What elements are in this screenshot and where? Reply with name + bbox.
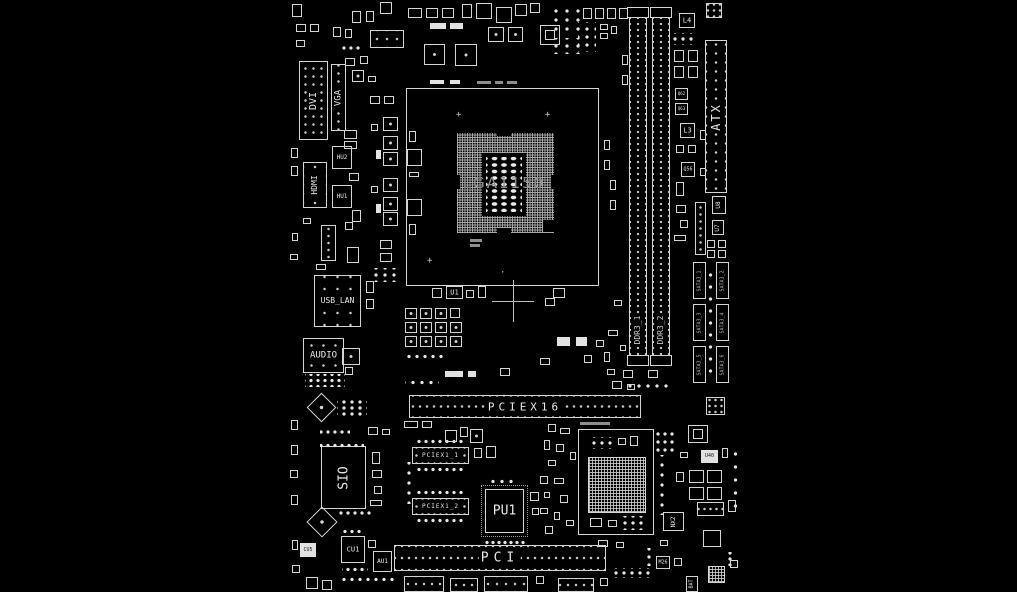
socket-notch [497,228,511,233]
smd-part [455,44,477,66]
smd-part [445,371,463,377]
smd-part [340,528,364,535]
chip-hu1-label: HU1 [335,194,350,200]
smd-part [380,253,392,262]
sata-port-6: SATA3_6 [716,346,729,383]
ddr3-2-slot: DDR3_2 [652,8,670,365]
smd-part [604,160,610,170]
smd-part [422,421,432,428]
smd-part [536,576,544,584]
smd-part [376,150,381,159]
smd-part [405,378,439,387]
smd-part [584,355,592,363]
smd-part [320,441,364,450]
smd-part [366,281,374,293]
smd-part [484,576,528,592]
smd-part [292,565,300,573]
smd-part [383,152,398,166]
smd-part [430,23,446,29]
smd-part [689,470,704,483]
smd-part [420,336,432,347]
smd-part [349,173,359,181]
chip-q62: Q62 [675,88,688,100]
ic-small-1 [706,397,725,415]
smd-part [508,27,523,42]
smd-part [341,44,361,52]
smd-part [344,130,357,139]
sata-port-3-label: SATA3_3 [697,312,702,333]
smd-part [296,24,306,32]
smd-part [383,178,398,192]
smd-part [540,476,548,484]
sata-port-4: SATA3_4 [716,304,729,341]
smd-part [420,308,432,319]
chip-nx2-label: NX2 [671,514,677,529]
smd-part [500,368,510,376]
smd-part [342,566,368,573]
smd-part [532,508,539,515]
smd-part [660,540,668,546]
smd-part [485,539,525,546]
header-vertical [695,202,706,255]
chip-q63: Q63 [675,103,688,115]
smd-part [291,166,298,176]
smd-part [544,440,550,450]
smd-part [703,530,721,547]
smd-part [680,452,688,458]
smd-part [352,210,361,222]
smd-part [630,436,638,446]
chip-cu5-label: CU5 [303,548,312,553]
smd-part [370,500,382,506]
smd-part [344,141,357,149]
smd-part [345,29,352,38]
top-right-header [706,3,722,18]
smd-part [558,578,594,592]
atx-power-connector-label: ATX [710,101,722,133]
smd-part [676,145,684,153]
smd-part [380,240,392,249]
smd-part [674,66,684,78]
smd-part [290,470,298,478]
smd-part [291,148,298,158]
sata-port-1-label: SATA3_1 [697,270,702,291]
smd-part [405,352,445,361]
pciex1-1-slot: PCIEX1_1 [412,447,469,464]
smd-part [718,240,726,248]
smd-part [408,8,422,18]
smd-part [450,322,462,333]
smd-part [291,495,298,505]
smd-part [628,382,668,390]
sata-port-5-label: SATA3_5 [697,354,702,375]
smd-part [460,427,468,437]
smd-part [611,26,617,34]
smd-part [545,298,555,306]
smd-part [610,180,616,190]
smd-part [620,345,626,351]
smd-part [688,50,698,62]
smd-part [320,428,350,436]
smd-part [604,140,610,150]
smd-part [384,96,394,104]
smd-part [291,420,298,430]
smd-part [468,371,476,377]
smd-part [366,299,374,309]
dvi-connector-label: DVI [309,89,319,111]
smd-part [368,540,376,548]
smd-part [345,222,353,230]
smd-part [405,322,417,333]
chip-sio: SIO [321,446,366,509]
crosshair-horizontal [492,301,534,302]
chip-l4: L4 [679,13,695,28]
smd-part [352,70,364,82]
smd-part [688,145,696,153]
smd-part [424,44,445,65]
chip-u40: U40 [701,450,718,463]
smd-part [442,8,454,18]
smd-part [466,290,474,298]
smd-part [545,526,553,534]
pciex1-2-slot: PCIEX1_2 [412,498,469,515]
smd-part [590,518,602,527]
smd-part [614,300,622,306]
smd-part [310,24,319,32]
socket-alignment-mark: + [456,111,461,120]
vga-connector: VGA [331,64,346,131]
chip-m26-label: M26 [656,560,669,565]
chip-l4-label: L4 [681,17,693,24]
smd-part [590,437,614,449]
smd-part [450,336,462,347]
socket-label: LGA1150 [463,174,545,192]
smd-part [292,233,298,241]
smd-part [322,580,332,590]
smd-part [676,472,684,482]
smd-part [380,2,392,14]
vga-connector-label: VGA [334,87,343,107]
smd-part [688,66,698,78]
dvi-connector: DVI [299,61,328,140]
hdmi-connector: HDMI [303,162,327,208]
smd-part [612,381,622,389]
ddr3-1-slot-label: DDR3_1 [634,315,642,346]
smd-part [435,322,447,333]
sata-port-2: SATA3_2 [716,262,729,299]
smd-part [655,455,669,515]
smd-part [616,542,624,548]
socket-notch [455,175,460,189]
chip-au1: AU1 [373,551,392,572]
smd-part [618,438,626,445]
smd-part [360,56,368,64]
socket-notch [497,131,511,136]
smd-part [383,197,398,211]
sata-port-3: SATA3_3 [693,304,706,341]
smd-part [370,30,404,48]
smd-part [496,7,512,23]
chip-u1: U1 [446,286,463,299]
chip-q62-label: Q62 [676,92,687,96]
chip-u8-label: U8 [716,199,722,210]
smd-part [450,23,463,29]
smd-part [372,452,380,464]
smd-part [622,75,628,85]
smd-part [680,220,688,228]
smd-part [622,516,644,530]
smd-part [722,448,728,458]
smd-part [648,370,658,378]
smd-part [371,186,378,193]
smd-part [689,487,704,500]
smd-part [707,487,722,500]
pciex1-2-slot-label: PCIEX1_2 [420,504,461,510]
smd-part [672,33,694,45]
hdmi-connector-label: HDMI [311,173,319,196]
fiducial-2 [306,506,337,537]
smd-part [338,509,372,517]
smd-part [426,8,438,18]
smd-part [291,445,298,455]
smd-part [383,212,398,226]
smd-part [600,24,608,30]
smd-part [290,254,298,260]
battery-connector-label: BAT [690,577,695,590]
smd-part [674,558,682,566]
socket-notch [551,175,556,189]
smd-part [305,374,345,387]
sata-port-2-label: SATA3_2 [720,270,725,291]
smd-part [383,136,398,150]
sata-port-6-label: SATA3_6 [720,354,725,375]
smd-part [414,517,466,524]
smd-part [435,308,447,319]
smd-part [488,27,504,42]
chip-pu1-label: PU1 [491,505,518,518]
sata-port-5: SATA3_5 [693,346,706,383]
smd-part [430,80,444,84]
smd-part [414,466,466,473]
smd-part [607,369,615,375]
smd-part [470,429,483,443]
smd-part [554,478,564,484]
smd-part [340,575,396,584]
smd-part [623,370,633,378]
smd-part [462,4,472,18]
smd-part [576,337,587,346]
chip-u7-label: U7 [715,222,721,233]
boardview-canvas: DVIVGAHDMIHU2HU1USB_LANAUDIOSIOCU1CU5AU1… [0,0,1017,592]
smd-part [352,11,361,23]
smd-part [432,288,442,298]
smd-part [600,33,608,39]
atx-power-connector: ATX [705,40,727,193]
smd-part [530,492,539,501]
smd-part [707,470,722,483]
smd-part [557,337,570,346]
smd-part [306,577,318,589]
smd-part [580,422,610,425]
smd-part [674,235,686,241]
pci-slot-label: PCI [479,552,521,565]
chip-u8: U8 [712,196,726,214]
smd-part [486,446,496,458]
smd-part [345,58,355,66]
smd-part [405,336,417,347]
smd-part [383,117,398,131]
chip-u1-label: U1 [448,289,460,296]
smd-part [337,399,367,417]
chip-q63-label: Q63 [676,107,687,111]
smd-part [610,200,616,210]
chip-m26: M26 [656,556,670,569]
smd-part [676,182,684,196]
smd-part [730,560,738,568]
chip-sio-label: SIO [337,464,350,491]
smd-part [622,55,628,65]
smd-part [405,308,417,319]
smd-part [420,322,432,333]
smd-part [414,438,466,445]
smd-part [608,520,617,527]
audio-connector: AUDIO [303,338,344,373]
smd-part [495,81,503,84]
cpu-socket: LGA1150+++· [406,88,599,286]
socket-alignment-mark: + [545,111,550,120]
pciex1-1-slot-label: PCIEX1_1 [420,453,461,459]
smd-part [370,96,380,104]
smd-part [707,250,715,258]
smd-part [718,250,726,258]
usb-lan-connector: USB_LAN [314,275,361,327]
smd-part [450,308,460,318]
smd-part [368,76,376,82]
sata-caps [707,268,714,378]
audio-codec-chip [321,225,336,261]
battery-connector: BAT [686,576,698,592]
fiducial-1 [307,393,337,423]
smd-part [566,520,574,526]
chip-u40-label: U40 [705,454,714,459]
chip-hu2: HU2 [332,146,352,169]
smd-part [556,444,564,452]
smd-part [600,578,608,586]
smd-part [404,462,414,504]
smd-part [450,578,478,592]
smd-part [604,352,610,362]
smd-part [560,495,568,503]
smd-part [619,8,628,19]
smd-part [371,124,378,131]
socket-alignment-mark: + [427,257,432,266]
chip-au1-label: AU1 [375,559,390,565]
socket-alignment-mark: · [500,269,505,278]
pci-slot: PCI [394,545,606,571]
smd-part [347,247,359,263]
crystal-bga [708,566,725,583]
smd-part [333,27,341,37]
smd-part [345,367,353,375]
smd-part [578,22,596,52]
smd-part [553,288,565,298]
pciex16-slot-label: PCIEX16 [486,401,564,412]
smd-part [656,430,674,454]
smd-part [693,429,703,439]
chip-cu5: CU5 [300,543,316,557]
smd-part [540,508,548,514]
chip-q56: Q56 [681,162,695,177]
smd-part [608,330,618,336]
chip-cu1-label: CU1 [345,546,362,553]
sata-port-4-label: SATA3_4 [720,312,725,333]
smd-part [560,428,570,434]
chip-hu1: HU1 [332,185,352,208]
smd-part [474,448,482,458]
smd-part [478,286,486,298]
chip-pu1: PU1 [485,489,524,533]
chipset-bga [588,457,646,513]
smd-part [731,445,740,515]
smd-part [366,11,374,22]
smd-part [507,81,517,84]
sata-port-1: SATA3_1 [693,262,706,299]
chip-u7: U7 [712,220,724,235]
chip-l3-label: L3 [681,127,693,134]
smd-part [570,452,576,460]
smd-part [342,348,360,365]
smd-part [700,130,706,140]
usb-lan-connector-label: USB_LAN [319,297,357,305]
smd-part [595,8,604,19]
smd-part [476,3,492,19]
smd-part [374,486,382,494]
smd-part [515,4,527,16]
smd-part [697,502,724,516]
smd-part [435,336,447,347]
smd-part [404,421,418,428]
ddr3-1-slot: DDR3_1 [629,8,647,365]
smd-part [445,430,457,442]
chip-q56-label: Q56 [681,167,694,172]
chip-cu1: CU1 [341,536,365,563]
smd-part [554,512,560,520]
smd-part [598,540,608,547]
audio-connector-label: AUDIO [308,351,339,360]
smd-part [368,427,378,435]
smd-part [530,3,540,13]
smd-part [303,218,311,224]
chip-hu2-label: HU2 [335,155,350,161]
smd-part [544,492,550,498]
smd-part [674,50,684,62]
smd-part [583,8,592,19]
smd-part [292,4,302,17]
smd-part [612,568,652,578]
smd-part [404,576,444,592]
smd-part [700,168,706,176]
smd-part [316,264,326,270]
smd-part [372,470,382,478]
smd-part [548,424,556,432]
smd-part [548,460,556,466]
smd-part [292,540,298,550]
smd-part [296,40,305,47]
smd-part [488,477,516,486]
smd-part [645,548,653,566]
smd-part [676,205,686,213]
smd-part [372,268,398,282]
